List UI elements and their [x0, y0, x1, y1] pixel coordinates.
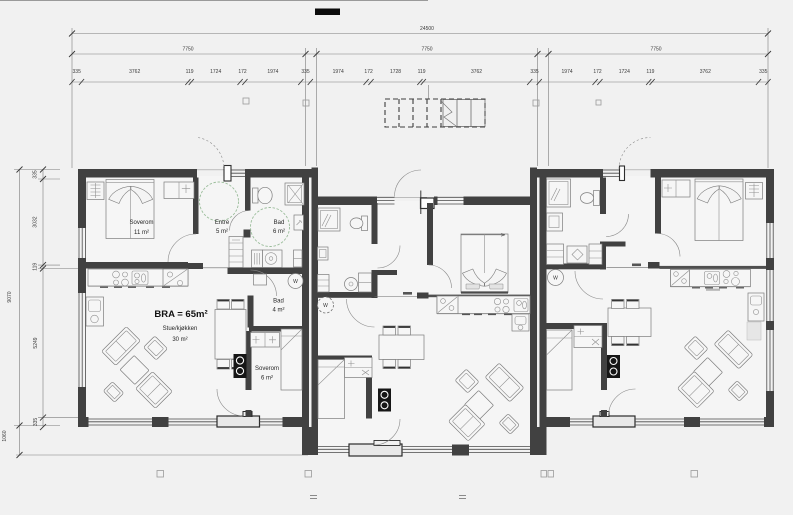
svg-text:172: 172 — [238, 69, 247, 75]
svg-text:5 m²: 5 m² — [216, 229, 228, 235]
svg-text:3762: 3762 — [129, 69, 140, 75]
svg-text:24500: 24500 — [420, 26, 434, 32]
svg-text:Entre: Entre — [215, 220, 230, 226]
svg-text:335: 335 — [530, 69, 539, 75]
svg-text:6 m²: 6 m² — [273, 229, 285, 235]
svg-text:7750: 7750 — [650, 47, 661, 53]
svg-text:335: 335 — [33, 170, 39, 179]
svg-text:1728: 1728 — [390, 69, 401, 75]
svg-text:9070: 9070 — [7, 291, 13, 302]
svg-text:172: 172 — [364, 69, 373, 75]
svg-text:119: 119 — [33, 263, 39, 271]
svg-text:172: 172 — [593, 69, 602, 75]
svg-text:335: 335 — [759, 69, 768, 75]
svg-text:W: W — [553, 276, 558, 282]
svg-text:1724: 1724 — [210, 69, 221, 75]
svg-text:1974: 1974 — [267, 69, 278, 75]
svg-text:6 m²: 6 m² — [261, 376, 273, 382]
svg-text:3762: 3762 — [700, 69, 711, 75]
svg-text:3762: 3762 — [471, 69, 482, 75]
svg-text:119: 119 — [418, 69, 426, 75]
svg-text:7750: 7750 — [182, 47, 193, 53]
svg-text:30 m²: 30 m² — [172, 337, 187, 343]
svg-text:W: W — [293, 279, 298, 285]
svg-text:3032: 3032 — [33, 216, 39, 227]
svg-text:1060: 1060 — [2, 430, 8, 441]
svg-text:335: 335 — [301, 69, 310, 75]
svg-text:5249: 5249 — [33, 337, 39, 348]
svg-text:Bad: Bad — [274, 220, 285, 226]
svg-text:335: 335 — [33, 418, 39, 427]
svg-text:Bad: Bad — [273, 299, 284, 305]
svg-text:7750: 7750 — [421, 47, 432, 53]
svg-text:1974: 1974 — [562, 69, 573, 75]
svg-text:4 m²: 4 m² — [273, 308, 285, 314]
svg-text:Soverom: Soverom — [255, 366, 279, 372]
svg-text:Soverom: Soverom — [129, 220, 153, 226]
svg-text:BRA = 65m²: BRA = 65m² — [154, 309, 207, 320]
svg-text:1974: 1974 — [333, 69, 344, 75]
svg-text:119: 119 — [186, 69, 194, 75]
svg-text:11 m²: 11 m² — [134, 230, 149, 236]
svg-text:335: 335 — [73, 69, 82, 75]
svg-text:1724: 1724 — [619, 69, 630, 75]
svg-text:119: 119 — [646, 69, 654, 75]
svg-text:W: W — [323, 303, 328, 309]
svg-text:Stue/kjøkken: Stue/kjøkken — [163, 326, 198, 332]
